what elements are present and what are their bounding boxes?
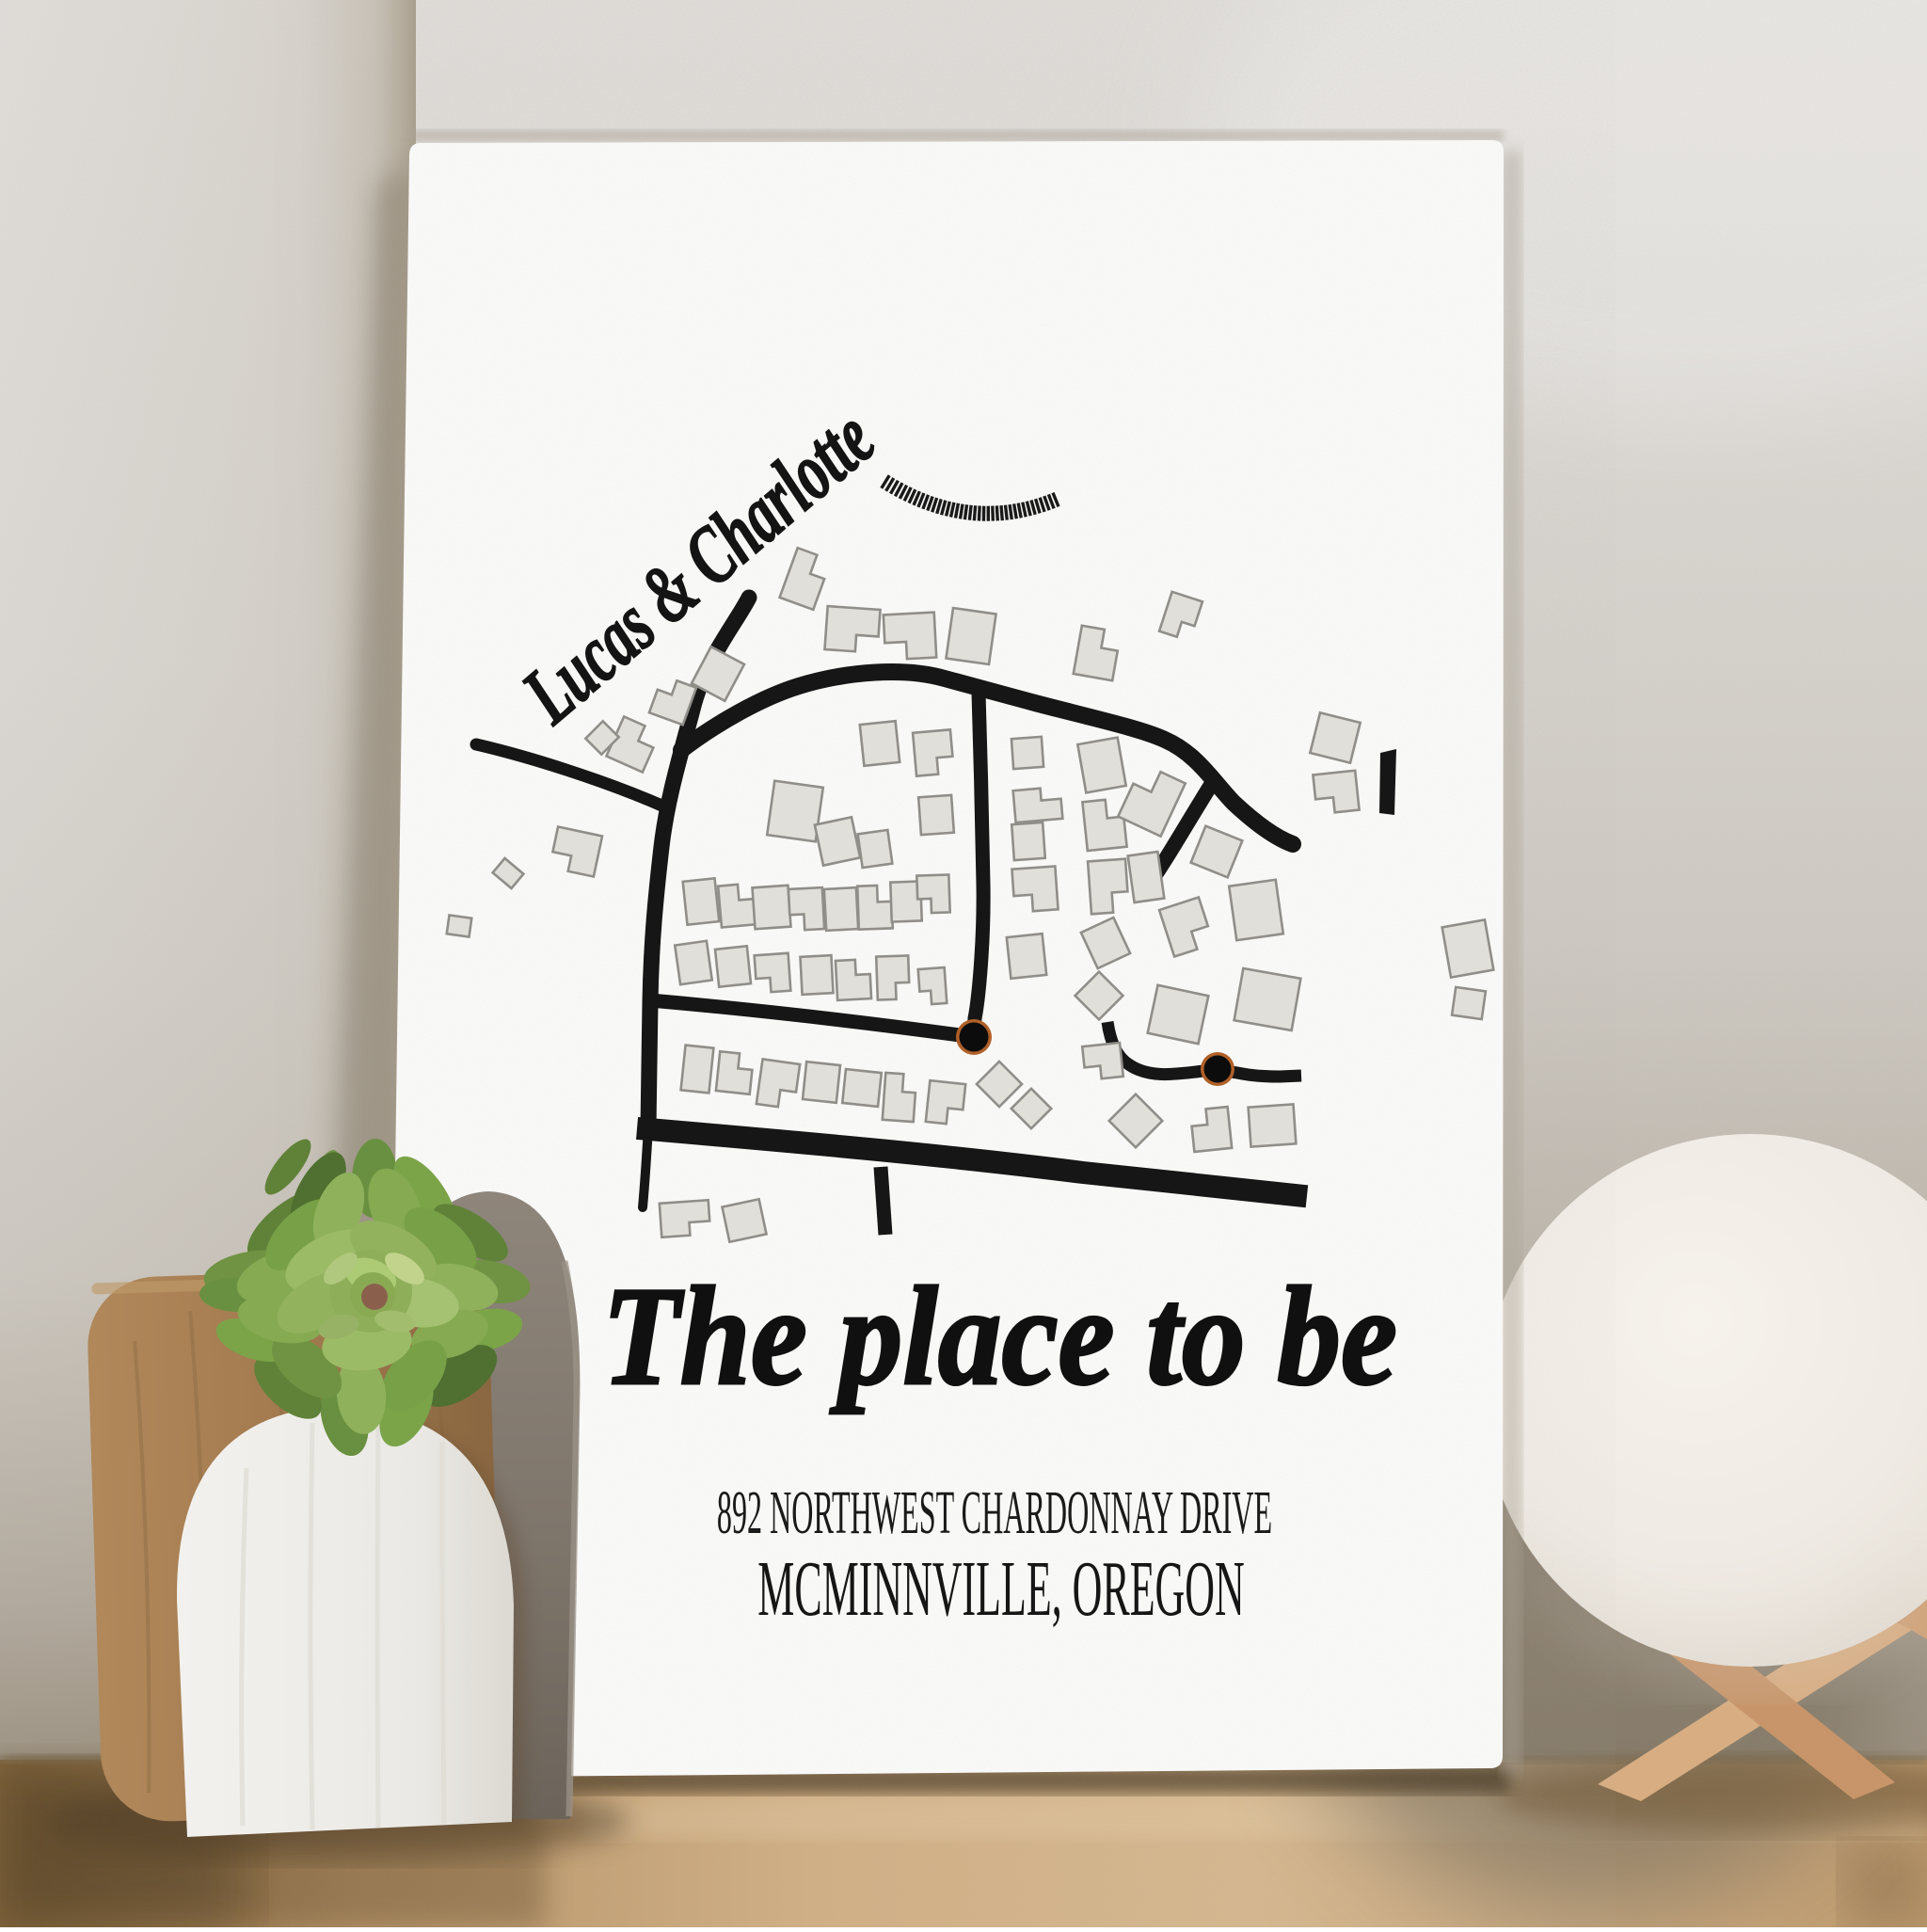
svg-text:The place to be: The place to be — [602, 1258, 1397, 1414]
svg-text:MCMINNVILLE, OREGON: MCMINNVILLE, OREGON — [757, 1545, 1245, 1633]
svg-text:892 NORTHWEST CHARDONNAY DRIVE: 892 NORTHWEST CHARDONNAY DRIVE — [717, 1477, 1272, 1547]
